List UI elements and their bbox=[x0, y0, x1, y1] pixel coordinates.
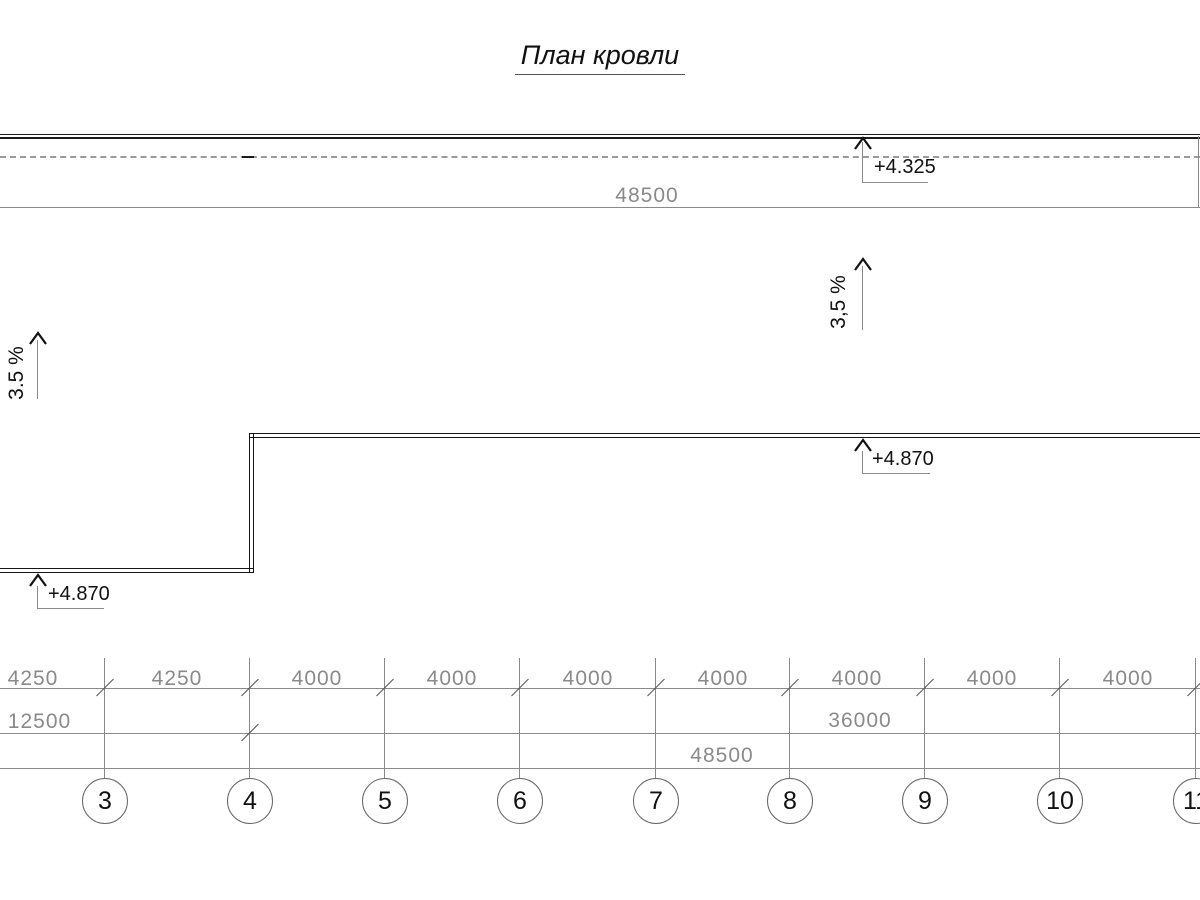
dim-segment-label: 4250 bbox=[127, 667, 227, 691]
top-edge-line-thick bbox=[0, 137, 1200, 139]
elevation-4870-right-label: +4.870 bbox=[872, 448, 934, 471]
axis-number: 5 bbox=[378, 787, 392, 816]
elevation-arrow-up-icon bbox=[853, 438, 873, 453]
axis-bubble-11: 11 bbox=[1173, 778, 1200, 824]
slope-left-label: 3.5 % bbox=[5, 338, 29, 408]
elevation-4870-left-label: +4.870 bbox=[48, 583, 110, 606]
axis-number: 6 bbox=[513, 787, 527, 816]
elevation-4325-label: +4.325 bbox=[874, 156, 936, 179]
roof-edge-step bbox=[249, 433, 254, 573]
axis-extension-line bbox=[519, 658, 520, 779]
slope-arrow-left-shaft bbox=[37, 340, 38, 399]
drawing-title-row: План кровли bbox=[0, 40, 1200, 75]
elevation-4870-left-underline bbox=[37, 608, 104, 609]
dim-segment-label: 4000 bbox=[673, 667, 773, 691]
dim-48500-label: 48500 bbox=[672, 744, 772, 768]
axis-extension-line bbox=[1059, 658, 1060, 779]
axis-number: 7 bbox=[649, 787, 663, 816]
axis-bubble-6: 6 bbox=[497, 778, 543, 824]
axis-bubble-4: 4 bbox=[227, 778, 273, 824]
top-edge-line-thin bbox=[0, 134, 1200, 135]
slope-right-label: 3,5 % bbox=[827, 267, 851, 337]
axis-extension-line bbox=[104, 658, 105, 779]
dim-segment-label: 4000 bbox=[402, 667, 502, 691]
roof-edge-upper bbox=[249, 433, 1200, 438]
axis-bubble-10: 10 bbox=[1037, 778, 1083, 824]
axis-number: 9 bbox=[918, 787, 932, 816]
elevation-4870-right-underline bbox=[862, 473, 930, 474]
dim-segment-label: 4250 bbox=[0, 667, 83, 691]
elevation-arrow-up-icon bbox=[853, 136, 873, 151]
axis-number: 3 bbox=[98, 787, 112, 816]
dim-segment-label: 4000 bbox=[807, 667, 907, 691]
dim-segment-label: 4000 bbox=[538, 667, 638, 691]
elevation-4870-left-leader bbox=[37, 586, 38, 608]
axis-extension-line bbox=[655, 658, 656, 779]
axis-bubble-8: 8 bbox=[767, 778, 813, 824]
axis-extension-line bbox=[789, 658, 790, 779]
axis-bubble-5: 5 bbox=[362, 778, 408, 824]
elevation-arrow-up-icon bbox=[28, 573, 48, 588]
axis-extension-line bbox=[384, 658, 385, 779]
axis-number: 8 bbox=[783, 787, 797, 816]
top-dim-extension-right bbox=[1198, 136, 1199, 208]
dim-12500-label: 12500 bbox=[2, 710, 77, 734]
axis-extension-line bbox=[1195, 658, 1196, 779]
axis-extension-line bbox=[924, 658, 925, 779]
drawing-title: План кровли bbox=[515, 40, 685, 75]
dim-segment-label: 4000 bbox=[267, 667, 367, 691]
elevation-4325-leader bbox=[862, 142, 863, 182]
axis-bubble-7: 7 bbox=[633, 778, 679, 824]
dim-36000-label: 36000 bbox=[810, 709, 910, 733]
slope-arrow-left-head-icon bbox=[28, 331, 48, 346]
elevation-4870-right-leader bbox=[862, 451, 863, 473]
dim-segment-label: 4000 bbox=[1078, 667, 1178, 691]
dashed-line-tick bbox=[242, 156, 254, 158]
axis-number: 10 bbox=[1046, 787, 1074, 816]
roof-axis-dashed-line bbox=[0, 156, 1200, 158]
axis-bubble-3: 3 bbox=[82, 778, 128, 824]
dim-line-row3 bbox=[0, 768, 1200, 769]
dim-line-row2 bbox=[0, 733, 1200, 734]
axis-bubble-9: 9 bbox=[902, 778, 948, 824]
elevation-4325-underline bbox=[862, 182, 928, 183]
slope-arrow-right-shaft bbox=[862, 266, 863, 330]
top-overall-dimension: 48500 bbox=[597, 184, 697, 208]
slope-arrow-right-head-icon bbox=[853, 257, 873, 272]
dim-segment-label: 4000 bbox=[942, 667, 1042, 691]
axis-extension-line bbox=[249, 658, 250, 779]
axis-number: 4 bbox=[243, 787, 257, 816]
axis-number: 11 bbox=[1183, 787, 1200, 816]
roof-plan-drawing: План кровли 48500 +4.325 3.5 % 3,5 % +4.… bbox=[0, 0, 1200, 900]
